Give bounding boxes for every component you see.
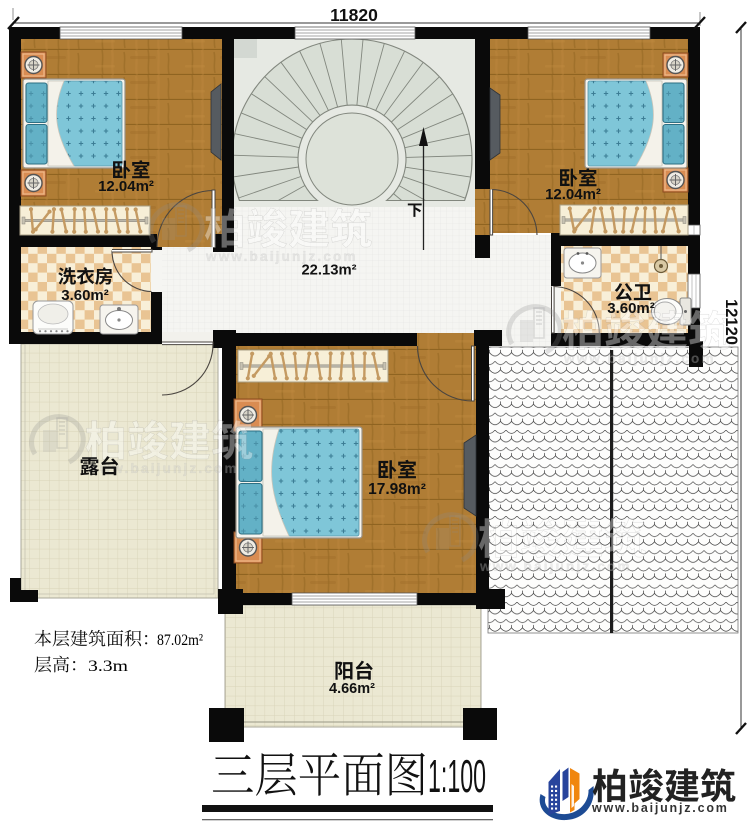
svg-text:4.66m²: 4.66m²: [329, 681, 375, 697]
svg-text:11820: 11820: [330, 5, 378, 25]
svg-text:3.60m²: 3.60m²: [61, 287, 109, 304]
svg-text:87.02m²: 87.02m²: [157, 632, 203, 649]
svg-text:22.13m²: 22.13m²: [301, 263, 356, 279]
svg-text:12.04m²: 12.04m²: [98, 178, 154, 195]
svg-text:1:100: 1:100: [428, 750, 486, 802]
svg-text:3.60m²: 3.60m²: [607, 300, 655, 317]
svg-text:12120: 12120: [722, 299, 740, 345]
svg-text:12.04m²: 12.04m²: [545, 186, 601, 203]
svg-text:17.98m²: 17.98m²: [368, 481, 426, 498]
svg-text:3.3m: 3.3m: [88, 658, 129, 675]
svg-text:www.baijunjz.com: www.baijunjz.com: [591, 801, 729, 815]
